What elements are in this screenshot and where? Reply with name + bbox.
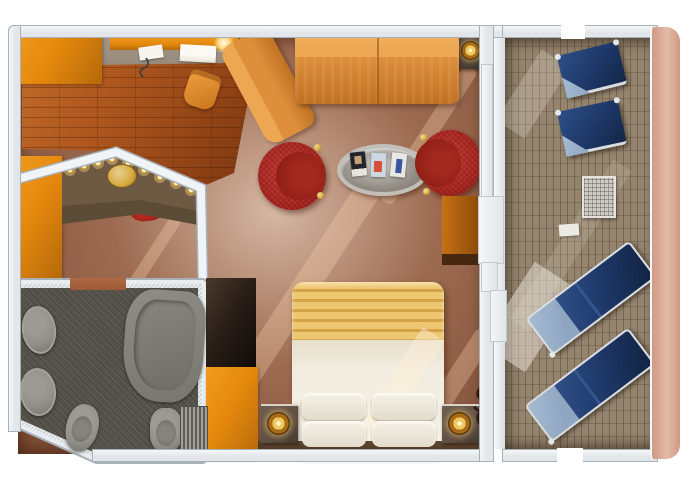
railing-gap-bottom [557, 448, 583, 463]
balcony-door-step [490, 290, 507, 342]
window-strip [481, 64, 493, 198]
dark-wardrobe-column [206, 278, 256, 367]
wall-left [8, 25, 21, 432]
cabinet-bottom [206, 367, 258, 459]
balcony-railing [650, 27, 680, 459]
floorplan-canvas [0, 0, 680, 486]
balcony-door-step [481, 262, 498, 292]
bathroom-door [70, 278, 126, 290]
railing-gap-top [561, 24, 585, 39]
wall-top [8, 25, 505, 38]
balcony-door-step [478, 196, 504, 264]
bidet [150, 408, 182, 452]
phone-cord [140, 58, 148, 77]
wall-bottom [92, 449, 494, 462]
vanity-gold-stool [107, 164, 137, 188]
